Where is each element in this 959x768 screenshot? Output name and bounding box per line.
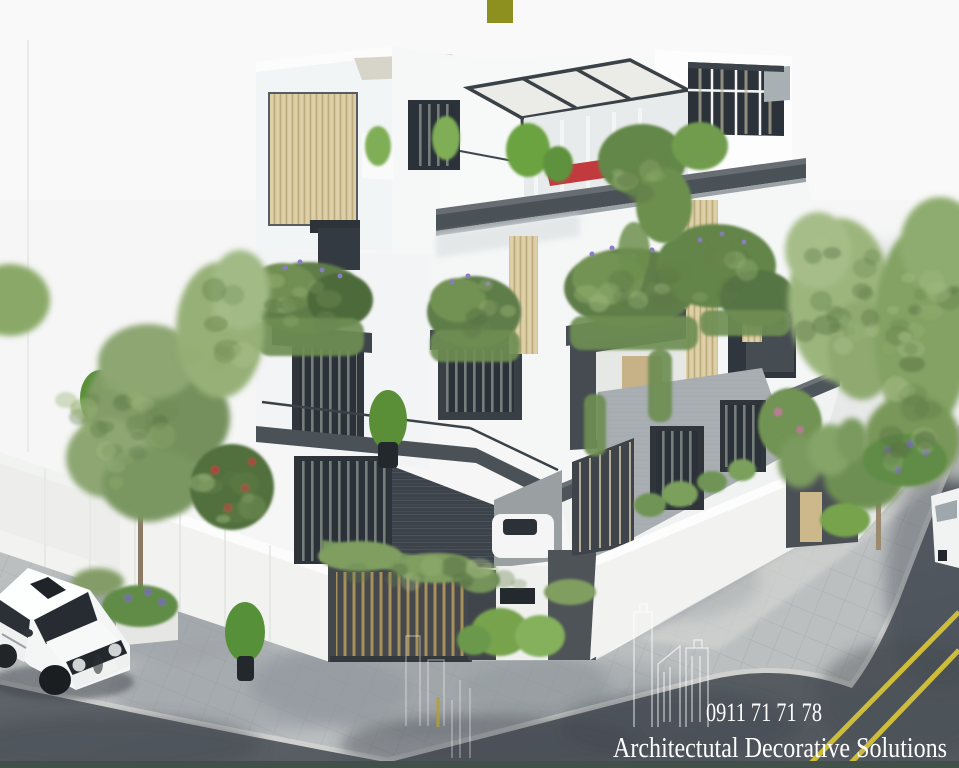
- svg-text:Architectutal Decorative Solut: Architectutal Decorative Solutions: [613, 733, 947, 764]
- svg-text:0911 71 71 78: 0911 71 71 78: [706, 698, 822, 727]
